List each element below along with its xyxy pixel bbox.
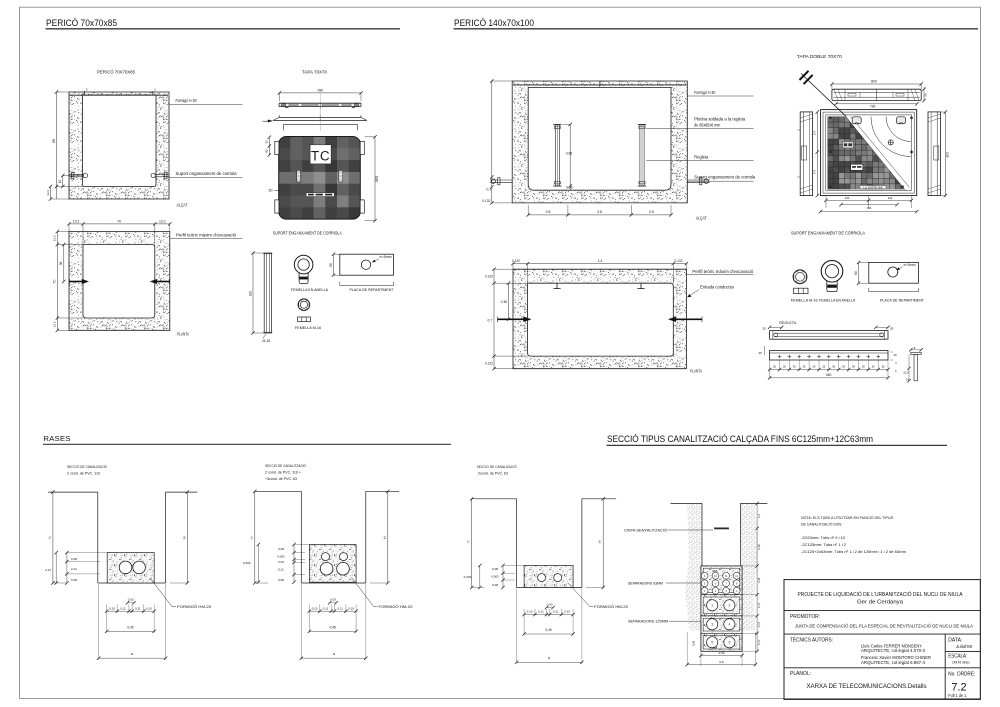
svg-text:ARQUITECTE, col.legiat 4.070-3: ARQUITECTE, col.legiat 4.070-3 xyxy=(861,648,926,653)
svg-text:Formigó H 30: Formigó H 30 xyxy=(694,90,716,95)
svg-text:85: 85 xyxy=(52,139,56,143)
svg-text:Perfil teòric màxim d'excavaci: Perfil teòric màxim d'excavació xyxy=(692,269,754,274)
svg-text:0,17: 0,17 xyxy=(757,602,761,608)
svg-text:PLACA DE REPARTIMENT: PLACA DE REPARTIMENT xyxy=(880,298,924,303)
svg-text:DE CANALITZACIÓ SÓN:: DE CANALITZACIÓ SÓN: xyxy=(801,522,842,527)
svg-text:-2C125+2c63mm: Tubs nº 1 i 2 d: -2C125+2c63mm: Tubs nº 1 i 2 de 125mm i … xyxy=(801,550,906,554)
svg-text:Ger de Cerdanya: Ger de Cerdanya xyxy=(857,600,903,606)
svg-text:PLANTA: PLANTA xyxy=(690,369,702,374)
svg-text:13.2: 13.2 xyxy=(53,235,57,241)
svg-text:FEMELLA M-16: FEMELLA M-16 xyxy=(295,325,322,330)
svg-text:1: 1 xyxy=(711,604,713,608)
svg-text:PROMOTOR:: PROMOTOR: xyxy=(790,614,820,620)
svg-text:H: H xyxy=(383,536,387,539)
svg-text:0,11: 0,11 xyxy=(323,606,329,610)
svg-text:FEMELLA M-16: FEMELLA M-16 xyxy=(791,298,819,303)
svg-text:2 cond. de PVC. 110: 2 cond. de PVC. 110 xyxy=(67,472,100,476)
svg-text:0,03: 0,03 xyxy=(547,602,553,606)
svg-text:PLACA DE REPARTIMENT: PLACA DE REPARTIMENT xyxy=(350,287,394,292)
svg-text:0,11: 0,11 xyxy=(553,610,559,614)
svg-text:0.08: 0.08 xyxy=(566,186,573,190)
svg-text:SUPORT ENGANXAMENT DE CORRIOLA: SUPORT ENGANXAMENT DE CORRIOLA xyxy=(273,231,342,236)
svg-text:1.4: 1.4 xyxy=(598,259,603,263)
svg-text:0,11: 0,11 xyxy=(135,606,141,610)
svg-text:h: h xyxy=(48,537,52,539)
svg-text:0.132: 0.132 xyxy=(485,275,493,279)
svg-text:SUPORT ENGANXAMENT DE CORRIOLA: SUPORT ENGANXAMENT DE CORRIOLA xyxy=(791,231,865,236)
svg-text:0,063: 0,063 xyxy=(491,575,499,579)
svg-text:Juliol'09: Juliol'09 xyxy=(956,644,972,649)
svg-text:60: 60 xyxy=(329,263,333,267)
svg-text:e=5mm: e=5mm xyxy=(904,263,916,267)
svg-text:SECCIÓ TIPUS CANALITZACIÓ CALÇ: SECCIÓ TIPUS CANALITZACIÓ CALÇADA FINS 6… xyxy=(607,434,873,444)
svg-text:13.2: 13.2 xyxy=(73,219,80,223)
svg-text:ALÇAT: ALÇAT xyxy=(177,203,188,208)
svg-text:PLANTA: PLANTA xyxy=(177,332,189,337)
svg-text:0,11: 0,11 xyxy=(278,568,284,572)
svg-text:Suport enganxament de corriola: Suport enganxament de corriola xyxy=(694,175,756,180)
svg-text:NOTA: ELS TUBS A UTILITZAR EN: NOTA: ELS TUBS A UTILITZAR EN FUNCIÓ DEL… xyxy=(801,515,893,520)
svg-text:0,11: 0,11 xyxy=(120,606,126,610)
svg-text:FEMELLA EN ANELLA: FEMELLA EN ANELLA xyxy=(819,298,855,303)
svg-text:0,45: 0,45 xyxy=(127,625,133,629)
svg-text:0.132: 0.132 xyxy=(675,259,683,263)
svg-text:TC: TC xyxy=(311,148,331,163)
svg-text:2cond. de PVC. 63: 2cond. de PVC. 63 xyxy=(478,472,508,476)
svg-text:Full 1 de 1: Full 1 de 1 xyxy=(948,693,966,698)
svg-text:0,11: 0,11 xyxy=(337,606,343,610)
svg-text:0,08: 0,08 xyxy=(692,640,696,646)
svg-text:0,45: 0,45 xyxy=(330,625,336,629)
svg-text:800: 800 xyxy=(871,79,877,83)
svg-text:36: 36 xyxy=(59,262,63,266)
svg-text:PERICÓ 70x70x85: PERICÓ 70x70x85 xyxy=(46,18,117,29)
svg-text:0,10: 0,10 xyxy=(146,606,152,610)
svg-text:440: 440 xyxy=(888,196,893,200)
svg-text:40: 40 xyxy=(894,353,898,357)
svg-text:660: 660 xyxy=(826,373,832,377)
svg-text:45: 45 xyxy=(759,351,763,355)
svg-text:0.1: 0.1 xyxy=(487,188,492,192)
svg-text:SEPARADORS 125MM: SEPARADORS 125MM xyxy=(628,619,668,624)
svg-text:70: 70 xyxy=(53,280,57,284)
svg-text:0.98: 0.98 xyxy=(566,152,573,156)
svg-text:0,365: 0,365 xyxy=(243,561,251,565)
svg-text:XARXA DE TELECOMUNICACIONS.Det: XARXA DE TELECOMUNICACIONS.Detalls xyxy=(807,683,927,690)
svg-text:a: a xyxy=(548,656,550,660)
svg-text:SECCIO DE CANALITZACIÓ: SECCIO DE CANALITZACIÓ xyxy=(265,463,306,468)
svg-text:63Ø: 63Ø xyxy=(712,647,717,650)
svg-text:TAPA 70X70: TAPA 70X70 xyxy=(302,70,328,75)
svg-text:Formigó H-30: Formigó H-30 xyxy=(176,98,198,103)
svg-text:0,17: 0,17 xyxy=(757,639,761,645)
svg-text:160: 160 xyxy=(248,291,252,297)
svg-text:ESCALA:: ESCALA: xyxy=(948,653,967,659)
svg-text:0,08: 0,08 xyxy=(492,583,498,587)
svg-text:e=5mm: e=5mm xyxy=(380,255,392,259)
svg-text:h: h xyxy=(250,537,254,539)
svg-text:FEMELLA EN ANELLA: FEMELLA EN ANELLA xyxy=(291,287,328,292)
svg-text:730: 730 xyxy=(870,105,876,109)
svg-text:0,38: 0,38 xyxy=(757,544,761,550)
svg-text:93: 93 xyxy=(265,140,269,143)
svg-text:0.5: 0.5 xyxy=(546,210,551,214)
svg-text:0,08: 0,08 xyxy=(492,567,498,571)
svg-text:0.7: 0.7 xyxy=(488,319,493,323)
svg-text:0,11: 0,11 xyxy=(538,610,544,614)
svg-text:H: H xyxy=(182,536,186,539)
svg-text:H: H xyxy=(598,540,602,543)
svg-text:0.5: 0.5 xyxy=(649,210,654,214)
svg-text:7.2: 7.2 xyxy=(951,682,966,694)
svg-text:60: 60 xyxy=(854,271,858,275)
svg-text:0,08: 0,08 xyxy=(71,578,77,582)
svg-text:DATA:: DATA: xyxy=(948,637,962,643)
svg-text:370: 370 xyxy=(812,169,816,174)
svg-text:0,10: 0,10 xyxy=(312,606,318,610)
svg-text:0,08: 0,08 xyxy=(757,577,761,583)
svg-text:Regleta: Regleta xyxy=(694,154,709,159)
svg-text:13.3: 13.3 xyxy=(46,190,50,196)
svg-text:Entrada conductes: Entrada conductes xyxy=(700,284,734,289)
svg-text:0,203: 0,203 xyxy=(464,575,472,579)
svg-text:0.132: 0.132 xyxy=(485,362,493,366)
svg-text:3: 3 xyxy=(711,623,713,627)
svg-text:0,03: 0,03 xyxy=(330,598,336,602)
svg-text:5: 5 xyxy=(711,641,713,645)
svg-text:DIN A3 Vàries: DIN A3 Vàries xyxy=(953,661,970,665)
svg-text:M-16: M-16 xyxy=(263,339,271,343)
svg-text:70: 70 xyxy=(117,219,121,223)
svg-text:85: 85 xyxy=(265,149,269,152)
svg-text:REGLETA: REGLETA xyxy=(779,320,796,325)
svg-text:a: a xyxy=(333,652,335,656)
svg-text:10: 10 xyxy=(58,180,62,184)
svg-text:-2C125mm: Tubs nº 1 i 2: -2C125mm: Tubs nº 1 i 2 xyxy=(801,543,846,547)
svg-text:0.132: 0.132 xyxy=(512,259,520,263)
svg-text:TÈCNICS AUTORS:: TÈCNICS AUTORS: xyxy=(790,636,833,643)
svg-text:440: 440 xyxy=(845,196,850,200)
svg-text:0,10: 0,10 xyxy=(527,610,533,614)
svg-text:+3cond. de PVC. 63: +3cond. de PVC. 63 xyxy=(265,477,297,481)
svg-text:0,063: 0,063 xyxy=(277,555,285,559)
svg-text:30: 30 xyxy=(269,189,273,193)
svg-text:0,03: 0,03 xyxy=(128,598,134,602)
svg-text:SECCIO DE CANALIZACIÓ: SECCIO DE CANALIZACIÓ xyxy=(477,464,517,469)
svg-text:PERICÓ 140x70x100: PERICÓ 140x70x100 xyxy=(454,18,534,29)
svg-text:0,11: 0,11 xyxy=(71,567,77,571)
svg-text:296: 296 xyxy=(867,206,872,210)
svg-text:805: 805 xyxy=(375,176,379,182)
svg-text:0,45: 0,45 xyxy=(545,628,551,632)
svg-text:63Ø: 63Ø xyxy=(712,570,717,573)
svg-text:25: 25 xyxy=(890,326,894,330)
svg-text:SECCIO DE CANALIZACIÓ: SECCIO DE CANALIZACIÓ xyxy=(67,464,107,469)
svg-text:0.36: 0.36 xyxy=(501,300,507,304)
svg-text:h: h xyxy=(467,541,471,543)
svg-text:ALÇAT: ALÇAT xyxy=(696,216,707,221)
svg-text:PROJECTE DE LIQUIDACIÓ DE L'UR: PROJECTE DE LIQUIDACIÓ DE L'URBANITZACIÓ… xyxy=(798,591,963,598)
svg-text:PLÀNOL:: PLÀNOL: xyxy=(790,670,811,677)
svg-text:0,59: 0,59 xyxy=(719,651,725,655)
svg-text:6: 6 xyxy=(728,641,730,645)
svg-text:de 85x65x6 mm: de 85x65x6 mm xyxy=(694,122,720,127)
svg-text:2 cond. de PVC. 110 +: 2 cond. de PVC. 110 + xyxy=(265,471,301,475)
svg-text:SEPARADORS 63MM: SEPARADORS 63MM xyxy=(628,581,663,586)
svg-text:0,8: 0,8 xyxy=(719,660,724,664)
svg-text:2: 2 xyxy=(728,604,730,608)
svg-text:0,08: 0,08 xyxy=(278,578,284,582)
svg-text:-2C63mm: Tubs nº 9 i 10: -2C63mm: Tubs nº 9 i 10 xyxy=(801,536,845,540)
svg-text:No. ORDRE:: No. ORDRE: xyxy=(948,671,975,677)
svg-text:50: 50 xyxy=(924,93,928,96)
svg-text:0.132: 0.132 xyxy=(482,199,490,203)
svg-text:370: 370 xyxy=(812,130,816,135)
svg-text:13.2: 13.2 xyxy=(53,321,57,327)
svg-text:TAPA DOBLE 70X70: TAPA DOBLE 70X70 xyxy=(797,54,843,59)
svg-text:0,10: 0,10 xyxy=(348,606,354,610)
svg-text:0,08: 0,08 xyxy=(71,557,77,561)
svg-text:4: 4 xyxy=(728,623,730,627)
svg-text:a: a xyxy=(131,652,133,656)
svg-text:LLI ENTRE BIE: LLI ENTRE BIE xyxy=(863,185,883,189)
svg-text:0,27: 0,27 xyxy=(45,568,51,572)
svg-text:FORMIGÓ HM-20: FORMIGÓ HM-20 xyxy=(379,604,413,609)
svg-text:RASES: RASES xyxy=(44,434,71,443)
svg-text:12.5: 12.5 xyxy=(903,371,909,375)
svg-text:FORMIGÓ HM-20: FORMIGÓ HM-20 xyxy=(594,604,628,609)
svg-text:0,10: 0,10 xyxy=(564,610,570,614)
svg-text:780: 780 xyxy=(317,88,323,92)
svg-text:25: 25 xyxy=(763,326,767,330)
svg-text:13.2: 13.2 xyxy=(159,219,166,223)
svg-text:CINTA SENYALITZACIÓ: CINTA SENYALITZACIÓ xyxy=(624,528,667,533)
svg-text:0,03: 0,03 xyxy=(278,560,284,564)
svg-text:FORMIGÓ HM-20: FORMIGÓ HM-20 xyxy=(177,604,211,609)
svg-text:Pletina soldada a la regleta: Pletina soldada a la regleta xyxy=(694,116,746,121)
svg-text:0,17: 0,17 xyxy=(757,621,761,627)
svg-text:0,08: 0,08 xyxy=(278,547,284,551)
svg-text:0,4: 0,4 xyxy=(757,514,761,518)
svg-text:800: 800 xyxy=(945,152,949,158)
svg-text:PERICÓ 70X70X85: PERICÓ 70X70X85 xyxy=(97,70,136,75)
svg-text:Suport enganxament de corriola: Suport enganxament de corriola xyxy=(176,171,238,176)
svg-text:0.8: 0.8 xyxy=(597,210,602,214)
svg-text:Perfil teòric màxim d'excavaci: Perfil teòric màxim d'excavació xyxy=(176,233,237,238)
svg-text:JUNTA DE COMPENSACIÓ DEL PLA E: JUNTA DE COMPENSACIÓ DEL PLA ESPECIAL DE… xyxy=(795,622,973,628)
svg-text:ARQUITECTE, col.legiat 6.967-4: ARQUITECTE, col.legiat 6.967-4 xyxy=(861,660,926,665)
svg-text:0,10: 0,10 xyxy=(109,606,115,610)
